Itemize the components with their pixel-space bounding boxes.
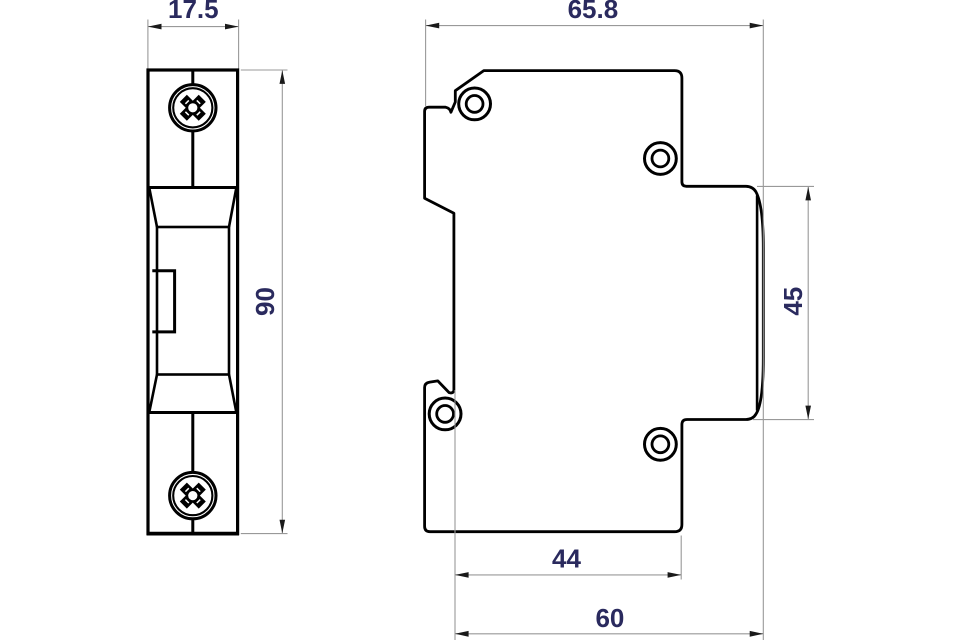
svg-text:60: 60: [595, 603, 624, 633]
svg-text:17.5: 17.5: [168, 0, 219, 24]
svg-text:90: 90: [250, 287, 280, 316]
svg-text:45: 45: [778, 287, 808, 316]
svg-text:65.8: 65.8: [568, 0, 619, 24]
svg-text:44: 44: [552, 544, 581, 574]
